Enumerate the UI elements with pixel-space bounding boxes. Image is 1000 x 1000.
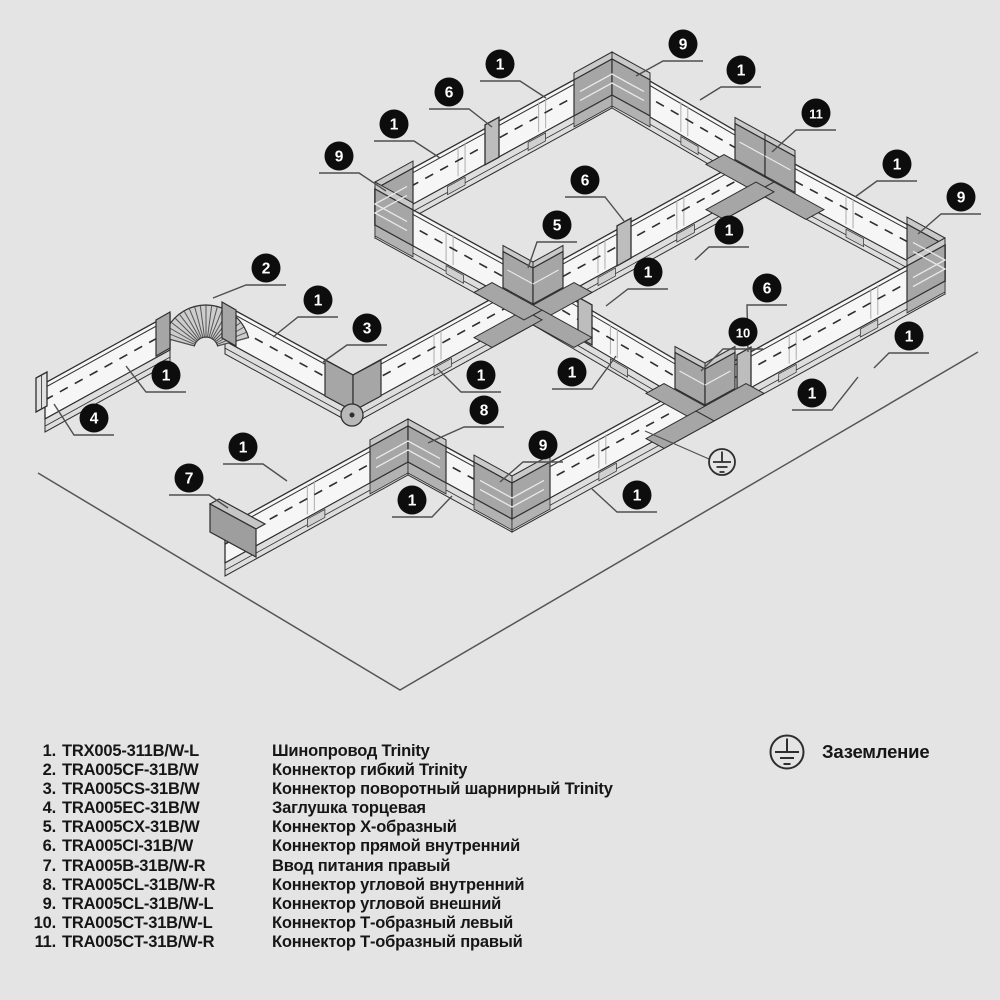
callout-number: 1 <box>725 222 734 239</box>
legend-item-code: TRA005CT-31B/W-R <box>62 933 266 952</box>
callout-11: 11 <box>772 99 836 153</box>
callout-number: 9 <box>539 437 548 454</box>
callout-number: 5 <box>553 217 562 234</box>
callout-1: 1 <box>855 150 917 198</box>
legend-row: 3.TRA005CS-31B/WКоннектор поворотный шар… <box>30 780 613 799</box>
callout-number: 1 <box>633 487 642 504</box>
legend-item-number: 4. <box>30 799 56 818</box>
callout-number: 1 <box>808 385 817 402</box>
legend-item-number: 5. <box>30 818 56 837</box>
legend-item-description: Коннектор поворотный шарнирный Trinity <box>272 780 613 799</box>
legend-row: 2.TRA005CF-31B/WКоннектор гибкий Trinity <box>30 761 613 780</box>
callout-7: 7 <box>169 464 228 509</box>
legend-item-description: Ввод питания правый <box>272 857 613 876</box>
outer-corner-top <box>574 52 650 127</box>
legend-item-code: TRA005CX-31B/W <box>62 818 266 837</box>
legend-list: 1.TRX005-311B/W-LШинопровод Trinity2.TRA… <box>30 742 613 952</box>
callout-number: 1 <box>893 156 902 173</box>
callout-number: 1 <box>390 116 399 133</box>
swivel-connector <box>325 360 381 426</box>
callout-number: 6 <box>445 84 454 101</box>
callout-1: 1 <box>592 481 657 513</box>
callout-9: 9 <box>636 30 703 77</box>
legend-item-code: TRA005CL-31B/W-L <box>62 895 266 914</box>
callout-number: 1 <box>314 292 323 309</box>
legend-item-description: Коннектор Т-образный правый <box>272 933 613 952</box>
callout-9: 9 <box>319 142 386 192</box>
callout-number: 6 <box>763 280 772 297</box>
legend-item-number: 6. <box>30 837 56 856</box>
inner-corner-peak <box>370 419 446 494</box>
grounding-icon <box>764 729 810 775</box>
callout-1: 1 <box>374 110 440 159</box>
callout-1: 1 <box>480 50 546 99</box>
callout-number: 1 <box>408 492 417 509</box>
legend-row: 5.TRA005CX-31B/WКоннектор X-образный <box>30 818 613 837</box>
callout-3: 3 <box>323 314 387 363</box>
callout-number: 1 <box>477 367 486 384</box>
callout-number: 9 <box>957 189 966 206</box>
legend-item-code: TRA005CT-31B/W-L <box>62 914 266 933</box>
callout-number: 11 <box>809 106 823 121</box>
callout-number: 10 <box>736 325 750 340</box>
legend-item-number: 1. <box>30 742 56 761</box>
callout-1: 1 <box>792 377 858 410</box>
trinity-track-layout-diagram: 91161119196512116310111118419711 1.TRX00… <box>0 0 1000 1000</box>
legend-item-code: TRA005CL-31B/W-R <box>62 876 266 895</box>
legend-item-description: Заглушка торцевая <box>272 799 613 818</box>
callout-number: 9 <box>679 36 688 53</box>
callout-6: 6 <box>429 78 492 128</box>
callout-number: 1 <box>905 328 914 345</box>
legend-row: 8.TRA005CL-31B/W-RКоннектор угловой внут… <box>30 876 613 895</box>
legend-item-description: Коннектор гибкий Trinity <box>272 761 613 780</box>
legend-item-code: TRX005-311B/W-L <box>62 742 266 761</box>
straight-connector <box>485 117 499 165</box>
legend-item-code: TRA005CI-31B/W <box>62 837 266 856</box>
callout-6: 6 <box>565 166 624 222</box>
legend-item-description: Коннектор X-образный <box>272 818 613 837</box>
callout-1: 1 <box>700 56 761 101</box>
legend-row: 6.TRA005CI-31B/WКоннектор прямой внутрен… <box>30 837 613 856</box>
callout-9: 9 <box>918 183 981 235</box>
legend-item-number: 11. <box>30 933 56 952</box>
callout-2: 2 <box>213 254 286 299</box>
legend-row: 11.TRA005CT-31B/W-RКоннектор Т-образный … <box>30 933 613 952</box>
legend-row: 9.TRA005CL-31B/W-LКоннектор угловой внеш… <box>30 895 613 914</box>
end-cap <box>36 372 47 412</box>
callout-1: 1 <box>273 286 338 338</box>
legend-item-number: 2. <box>30 761 56 780</box>
legend-row: 7.TRA005B-31B/W-RВвод питания правый <box>30 857 613 876</box>
callout-1: 1 <box>223 433 287 482</box>
callout-number: 7 <box>185 470 194 487</box>
outer-corner-left <box>375 161 413 257</box>
straight-connector <box>617 218 631 266</box>
legend-item-description: Шинопровод Trinity <box>272 742 613 761</box>
callout-number: 2 <box>262 260 271 277</box>
outer-corner-right <box>907 217 945 313</box>
legend-item-number: 8. <box>30 876 56 895</box>
legend-row: 10.TRA005CT-31B/W-LКоннектор Т-образный … <box>30 914 613 933</box>
callout-number: 1 <box>496 56 505 73</box>
callout-number: 6 <box>581 172 590 189</box>
callout-number: 1 <box>644 264 653 281</box>
callout-number: 8 <box>480 402 489 419</box>
legend-item-description: Коннектор угловой внешний <box>272 895 613 914</box>
callout-number: 4 <box>90 410 99 427</box>
legend-item-code: TRA005EC-31B/W <box>62 799 266 818</box>
outer-corner-valley <box>474 455 550 530</box>
legend-item-number: 10. <box>30 914 56 933</box>
legend-row: 4.TRA005EC-31B/WЗаглушка торцевая <box>30 799 613 818</box>
callout-number: 3 <box>363 320 372 337</box>
legend-item-description: Коннектор угловой внутренний <box>272 876 613 895</box>
legend-item-description: Коннектор прямой внутренний <box>272 837 613 856</box>
legend-item-number: 7. <box>30 857 56 876</box>
legend-item-description: Коннектор Т-образный левый <box>272 914 613 933</box>
callout-number: 1 <box>239 439 248 456</box>
callout-number: 1 <box>568 364 577 381</box>
legend-item-code: TRA005CS-31B/W <box>62 780 266 799</box>
legend-row: 1.TRX005-311B/W-LШинопровод Trinity <box>30 742 613 761</box>
callout-number: 9 <box>335 148 344 165</box>
callout-number: 1 <box>737 62 746 79</box>
grounding-label: Заземление <box>822 729 929 775</box>
legend-item-code: TRA005CF-31B/W <box>62 761 266 780</box>
legend-item-number: 9. <box>30 895 56 914</box>
callout-number: 1 <box>162 367 171 384</box>
legend-item-number: 3. <box>30 780 56 799</box>
grounding-legend: Заземление <box>764 729 929 775</box>
legend-item-code: TRA005B-31B/W-R <box>62 857 266 876</box>
